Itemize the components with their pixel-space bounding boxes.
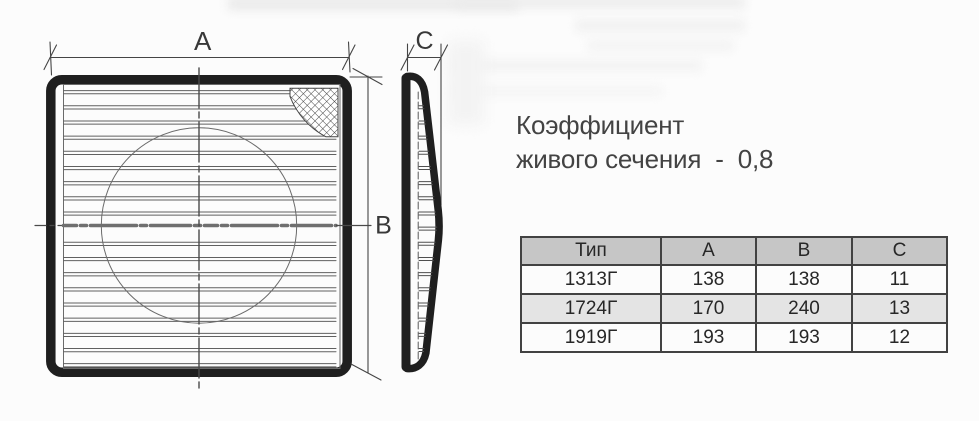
svg-text:A: A [194,26,212,56]
svg-text:B: B [375,212,392,240]
svg-text:C: C [415,27,433,55]
